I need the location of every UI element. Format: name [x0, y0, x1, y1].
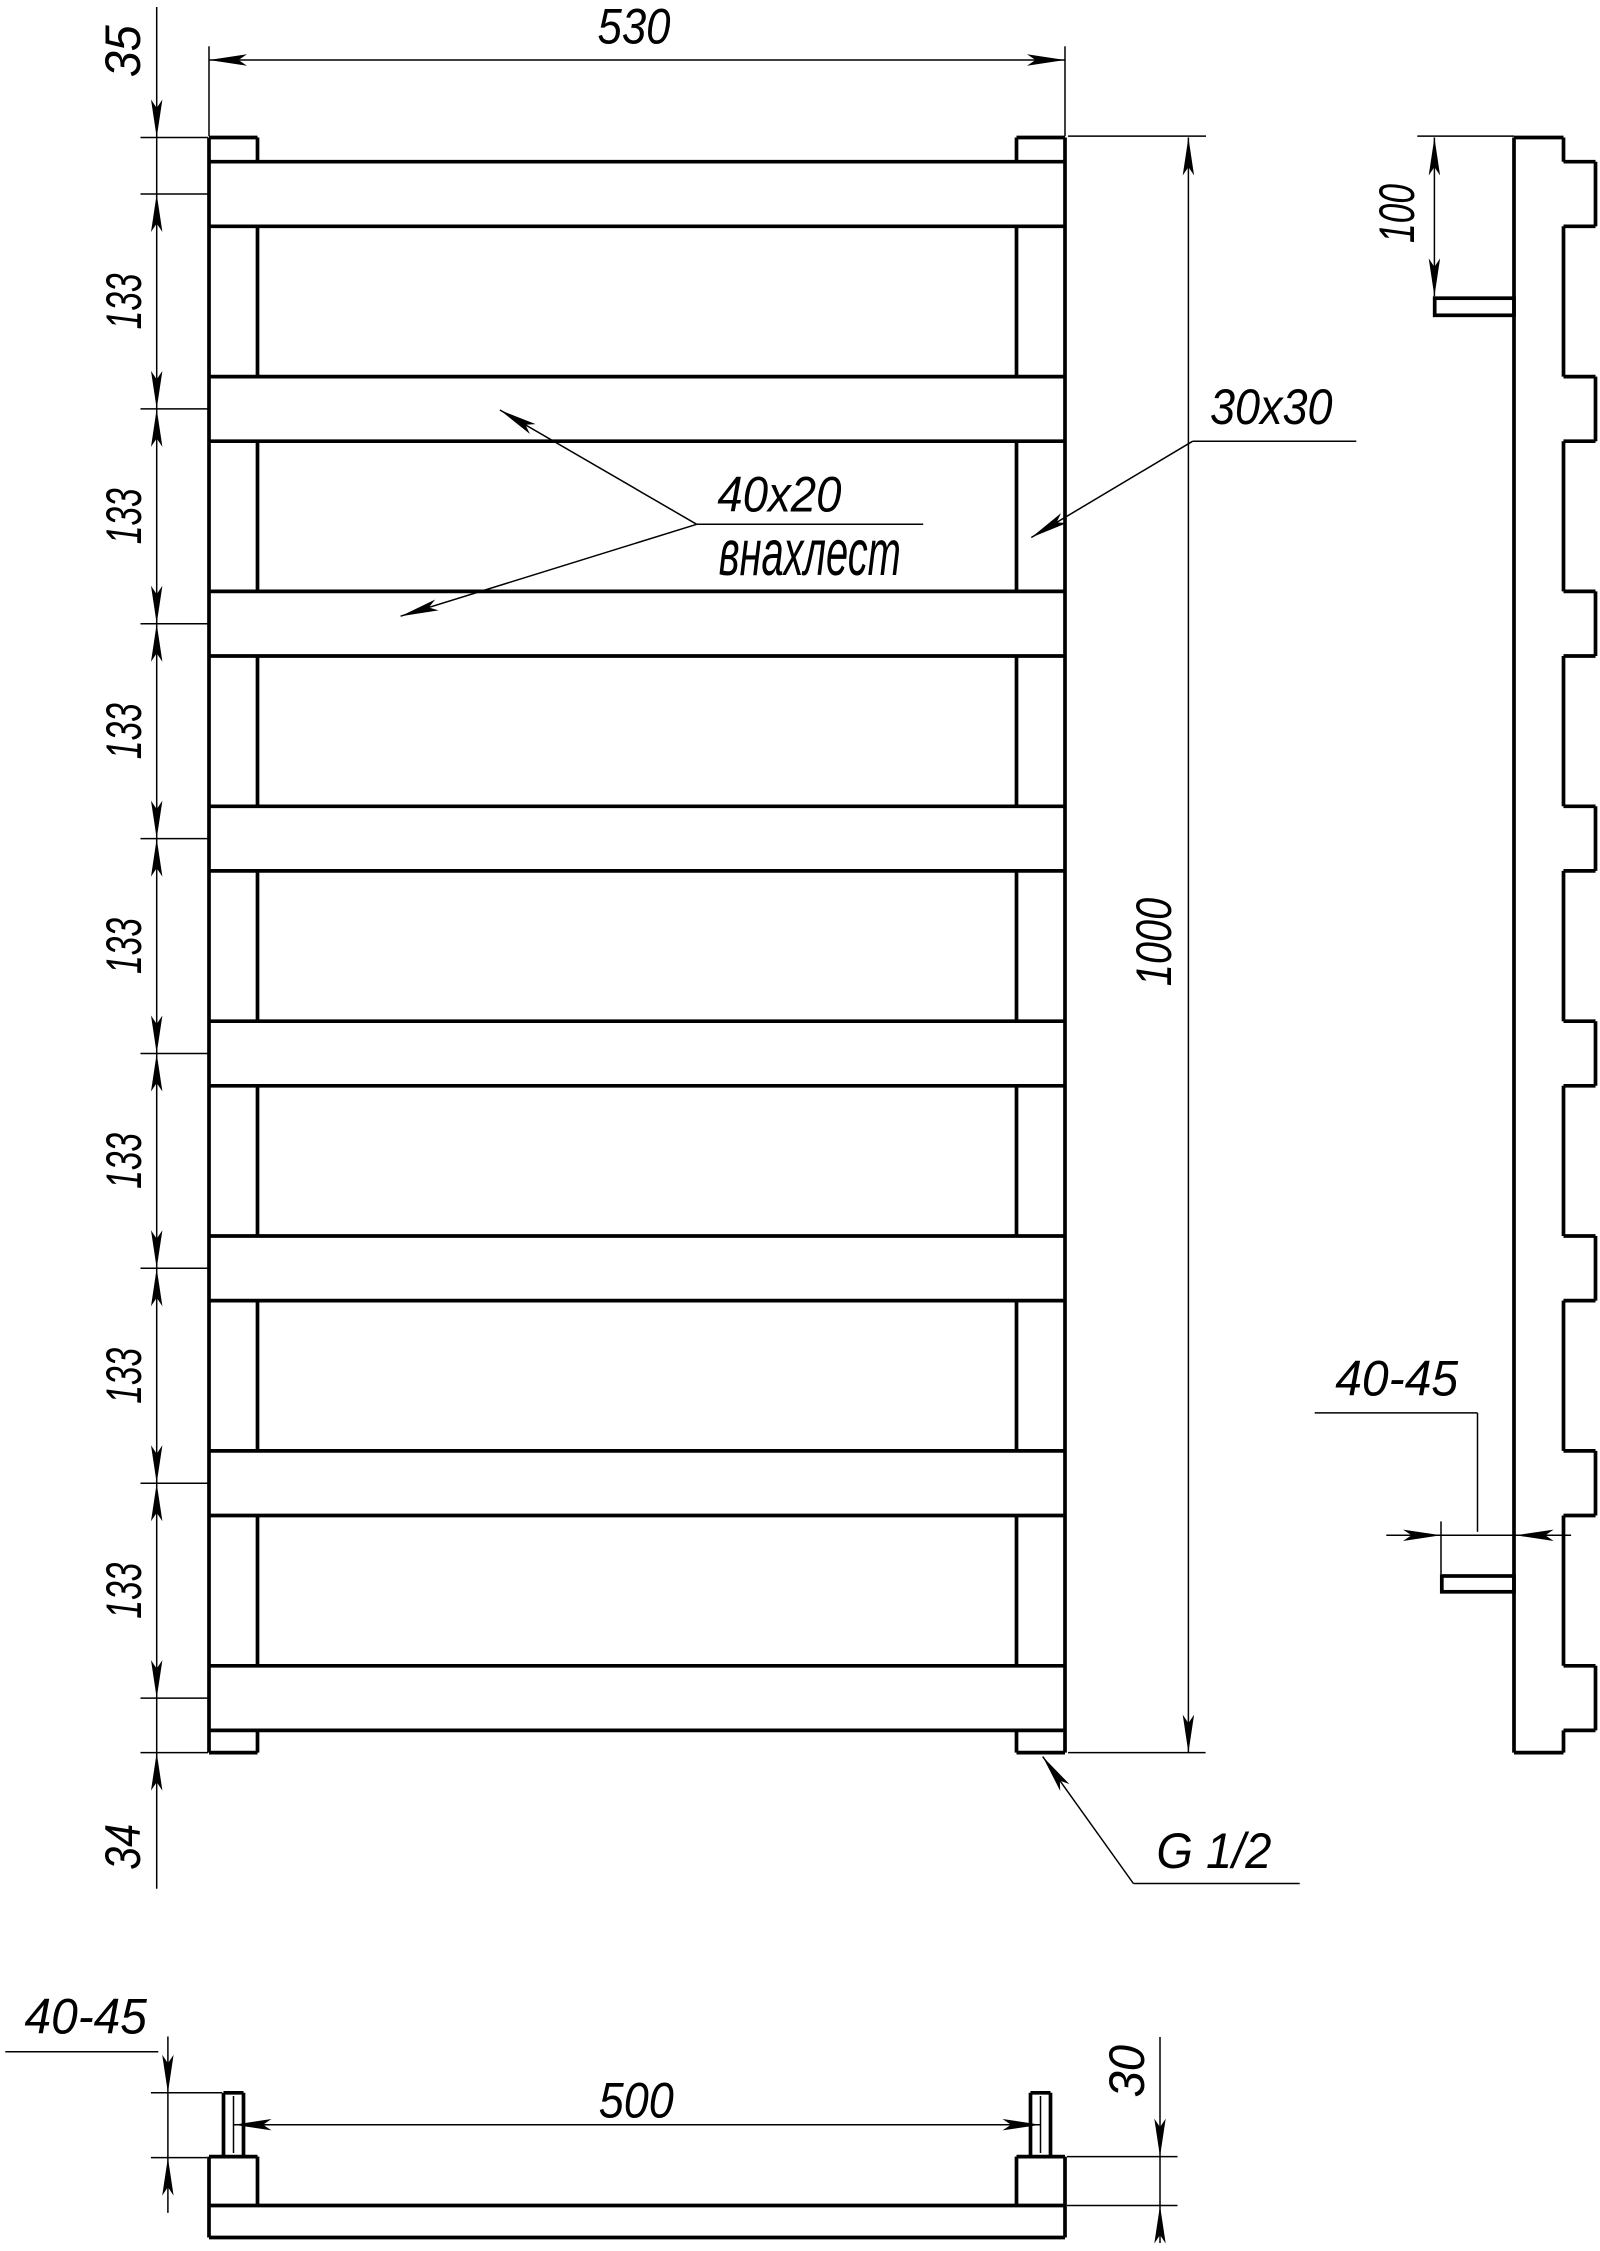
svg-text:34: 34	[95, 1824, 151, 1870]
svg-text:40-45: 40-45	[24, 1988, 147, 2044]
svg-text:30x30: 30x30	[1210, 379, 1333, 435]
svg-text:35: 35	[95, 25, 151, 77]
svg-text:133: 133	[96, 918, 152, 974]
svg-text:133: 133	[96, 273, 152, 329]
svg-text:30: 30	[1099, 2045, 1155, 2098]
svg-text:40-45: 40-45	[1335, 1351, 1458, 1407]
svg-text:100: 100	[1369, 184, 1425, 243]
svg-text:133: 133	[96, 1133, 152, 1189]
svg-text:133: 133	[96, 488, 152, 544]
svg-text:40x20: 40x20	[717, 466, 841, 522]
svg-text:1000: 1000	[1126, 898, 1182, 987]
svg-text:133: 133	[96, 1348, 152, 1404]
svg-text:133: 133	[96, 703, 152, 759]
svg-text:530: 530	[598, 0, 671, 54]
svg-text:G 1/2: G 1/2	[1156, 1823, 1271, 1879]
svg-text:133: 133	[96, 1563, 152, 1619]
svg-text:500: 500	[599, 2073, 674, 2129]
svg-text:внахлест: внахлест	[719, 516, 901, 589]
